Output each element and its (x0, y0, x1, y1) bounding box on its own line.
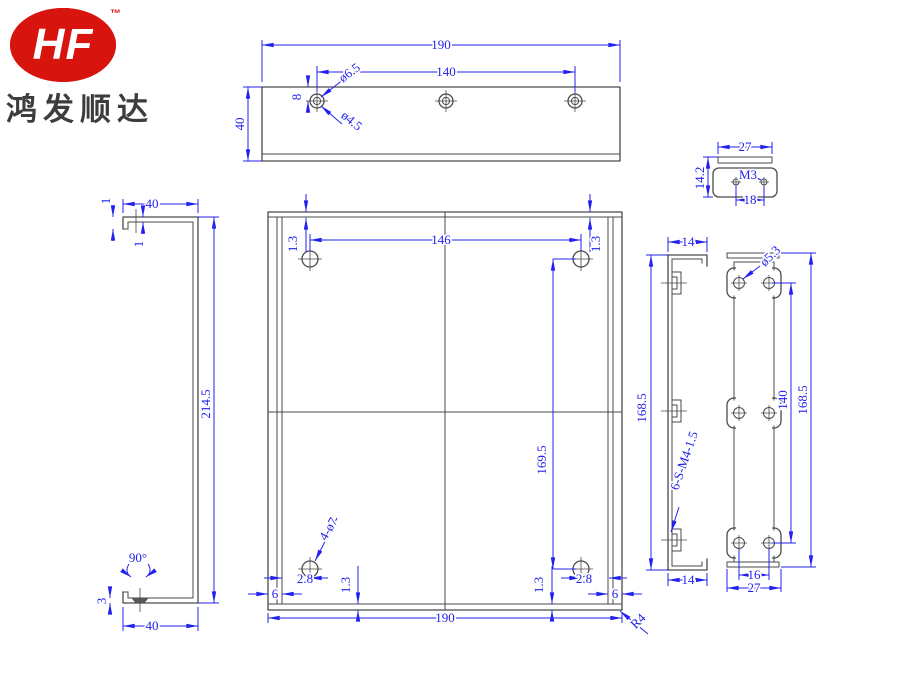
dim-label: 27 (748, 580, 762, 595)
dim-label: 2.8 (576, 571, 592, 586)
side-view: 1 40 1 214.5 90° 3 40 (94, 196, 219, 633)
dim-label: M3 (739, 167, 757, 182)
dim-label: 214.5 (198, 389, 213, 418)
dim-label: 140 (436, 64, 456, 79)
dim-label: 27 (739, 139, 753, 154)
dim-label: ø4.5 (338, 107, 365, 133)
drawing-sheet: HF ™ 鸿发顺达 190 (0, 0, 900, 696)
dim-label: 1 (98, 198, 113, 205)
rail-tabs (661, 272, 687, 551)
dim-label: 1.3 (588, 236, 603, 252)
dim-label: 6 (272, 586, 279, 601)
dim-label: 169.5 (534, 445, 549, 474)
front-view: 1.3 1.3 146 169.5 4-ø7 2.8 2.8 1.3 1.3 (248, 194, 649, 634)
dim-label: 190 (435, 610, 455, 625)
dim-label: 168.5 (634, 393, 649, 422)
dim-label: 8 (289, 94, 304, 101)
dim-label: 3 (94, 598, 109, 605)
dim-label: 6 (612, 586, 619, 601)
dim-label: ø6.5 (336, 60, 363, 86)
dim-label: 2.8 (297, 571, 313, 586)
top-view: 190 140 40 8 ø6.5 ø4.5 (232, 37, 620, 161)
drawing-canvas: 190 140 40 8 ø6.5 ø4.5 1 (0, 0, 900, 696)
dim-label: 1.3 (285, 236, 300, 252)
dim-label: 14.2 (692, 167, 707, 190)
dim-label: 1.3 (338, 577, 353, 593)
dim-label: 1.3 (531, 577, 546, 593)
dim-label: 146 (431, 232, 451, 247)
dim-label: 140 (775, 390, 790, 410)
dim-label: 14 (682, 234, 696, 249)
clip-view: 27 14.2 M3 18 (692, 139, 777, 207)
dim-label: 168.5 (795, 385, 810, 414)
dim-label: 190 (431, 37, 451, 52)
dim-label: 40 (232, 118, 247, 131)
dim-label: R4 (627, 610, 649, 632)
rail-front-view: ø5.3 140 168.5 16 27 (727, 242, 816, 595)
dim-label: 40 (146, 196, 159, 211)
dim-label: 40 (146, 618, 159, 633)
dim-label: 18 (744, 192, 757, 207)
dim-label: 14 (682, 572, 696, 587)
dim-label: 1 (131, 241, 146, 248)
rail-side-view: 14 168.5 6-S-M4-1.5 14 (634, 234, 707, 587)
dim-label: 90° (129, 550, 147, 565)
